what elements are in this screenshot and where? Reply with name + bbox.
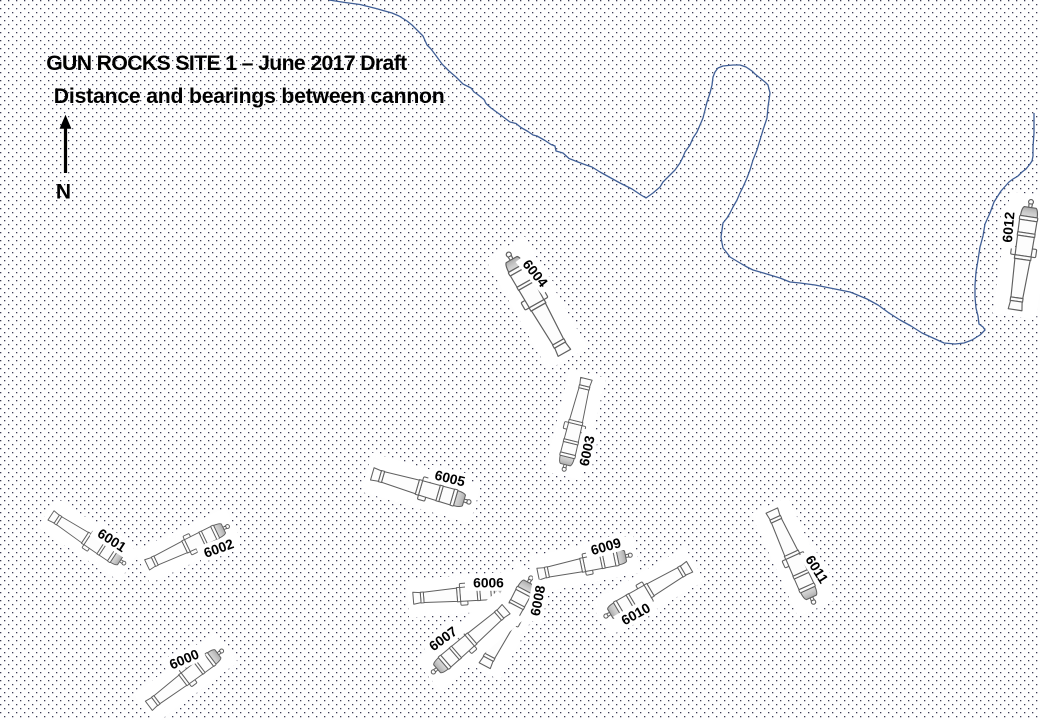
svg-text:N: N: [56, 181, 71, 204]
svg-text:Distance and bearings between: Distance and bearings between cannon: [54, 85, 445, 108]
svg-text:6006: 6006: [473, 575, 504, 590]
svg-text:6012: 6012: [1000, 211, 1018, 243]
svg-text:GUN ROCKS SITE 1 – June 2017 D: GUN ROCKS SITE 1 – June 2017 Draft: [46, 52, 407, 75]
